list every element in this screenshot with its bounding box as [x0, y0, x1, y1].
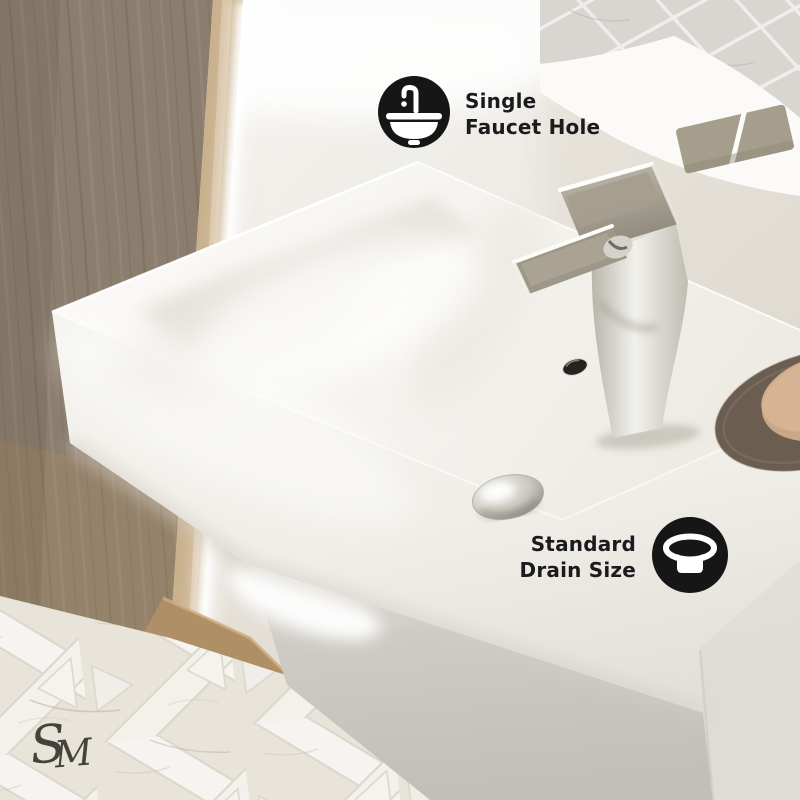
standard-drain-icon	[652, 517, 728, 597]
faucet-badge-label: Single Faucet Hole	[465, 88, 600, 140]
brand-monogram-watermark: SM	[28, 715, 94, 772]
faucet-badge-line1: Single	[465, 88, 600, 114]
watermark-letter-m: M	[53, 733, 94, 773]
standard-drain-size-badge: Standard Drain Size	[498, 517, 728, 597]
faucet-badge-line2: Faucet Hole	[465, 114, 600, 140]
single-faucet-hole-icon	[378, 76, 450, 152]
drain-badge-label: Standard Drain Size	[498, 531, 636, 583]
drain-badge-line2: Drain Size	[498, 557, 636, 583]
product-photo-bathroom-sink: Single Faucet Hole Standard Drain Size S…	[0, 0, 800, 800]
drain-badge-line1: Standard	[498, 531, 636, 557]
single-faucet-hole-badge: Single Faucet Hole	[378, 76, 600, 152]
